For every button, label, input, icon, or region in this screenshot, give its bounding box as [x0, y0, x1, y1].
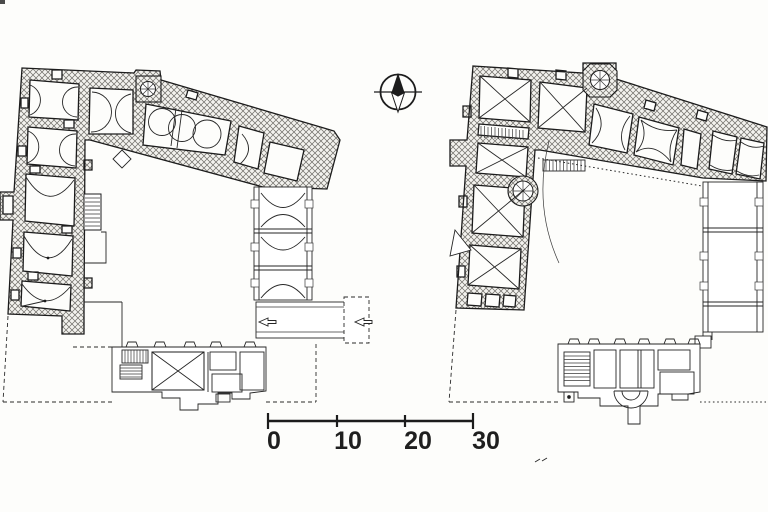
scan-artifact [0, 0, 5, 4]
scale-label-10: 10 [334, 427, 362, 455]
east-wing [251, 187, 313, 300]
vault-keystone-dot [47, 257, 50, 260]
vault-keystone-dot [44, 300, 47, 303]
gate-passage [256, 297, 372, 343]
courtyard-stair [543, 160, 585, 171]
architectural-drawing: 0 10 20 30 [0, 0, 768, 512]
stair-tower [136, 76, 161, 102]
scale-label-0: 0 [267, 427, 281, 455]
stair-turret [583, 64, 617, 97]
scale-label-30: 30 [472, 427, 500, 455]
east-wing [695, 182, 763, 348]
scale-label-20: 20 [404, 427, 432, 455]
